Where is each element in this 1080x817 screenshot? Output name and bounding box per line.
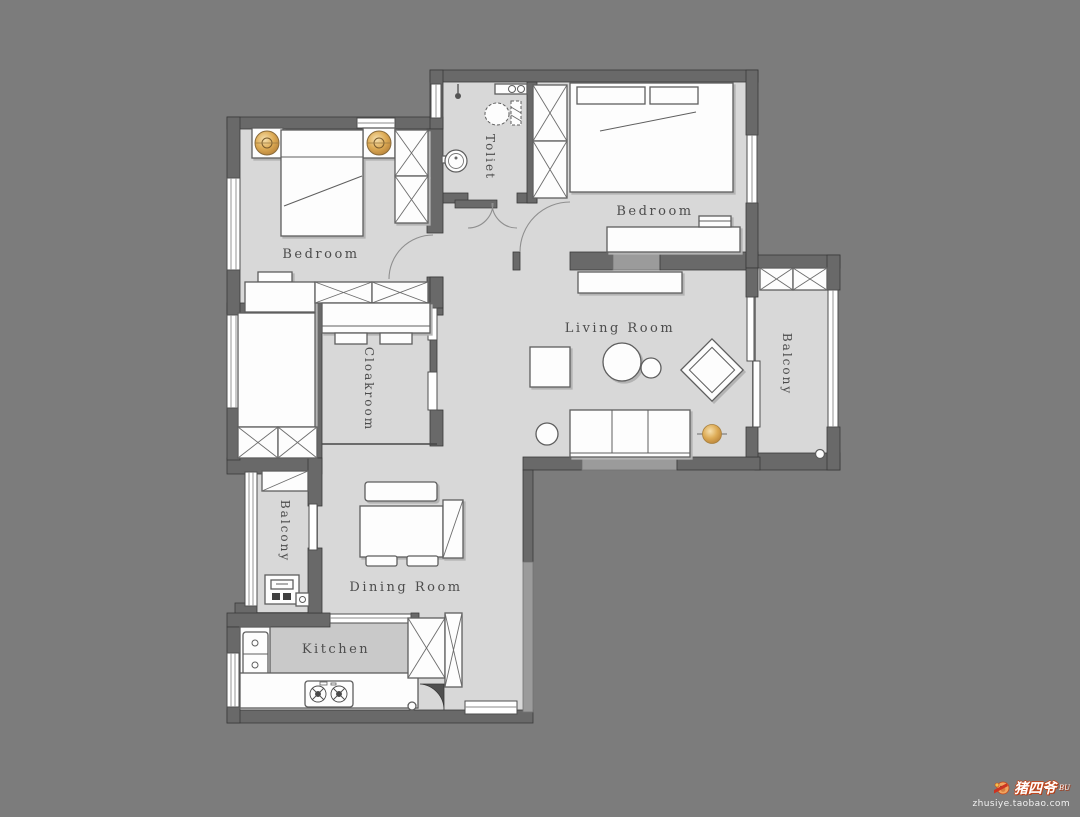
- ceiling-lamp-icon: [255, 131, 279, 155]
- bed-icon: [281, 130, 363, 236]
- window-hall-bottom: [465, 701, 517, 714]
- window-balcony-right: [828, 290, 838, 427]
- ceiling-lamp-icon: [367, 131, 391, 155]
- dining-bench-icon: [443, 500, 463, 558]
- washing-machine-icon: [265, 575, 299, 604]
- watermark-url: zhusiye.taobao.com: [960, 799, 1070, 809]
- window-kitchen-pass-through: [330, 614, 411, 623]
- balcony-cabinet-icon: [760, 268, 827, 290]
- toilet-threshold: [455, 200, 497, 208]
- watermark-brand: 猪四爷: [1014, 778, 1056, 798]
- pillow-icon: [650, 87, 698, 104]
- window-bedroom1-left: [227, 178, 240, 270]
- pillow-icon: [577, 87, 645, 104]
- window-bedroom2-right: [747, 135, 757, 203]
- side-table-icon: [530, 347, 570, 387]
- dining-chair-icon: [407, 556, 438, 566]
- dining-table-icon: [360, 506, 443, 557]
- dining-chair-icon: [366, 556, 397, 566]
- drain-icon: [816, 450, 825, 459]
- fridge-icon: [408, 613, 462, 687]
- door-stop-icon: [408, 702, 416, 710]
- tv-console-icon: [578, 272, 682, 293]
- room-label-bedroom-2: Bedroom: [616, 204, 693, 219]
- room-label-kitchen: Kitchen: [302, 642, 370, 657]
- room-label-toilet: Toliet: [483, 134, 497, 180]
- room-label-dining-room: Dining Room: [349, 580, 462, 595]
- faucet-icon: [509, 86, 516, 93]
- dining-chair-icon: [365, 482, 437, 501]
- window-bedroom1-top: [357, 118, 395, 128]
- watermark-brand-suffix: BU: [1059, 784, 1070, 792]
- window-balcony-left: [245, 472, 257, 606]
- balcony-shelf-icon: [262, 471, 308, 491]
- coffee-table-icon: [603, 343, 641, 381]
- pig-logo-icon: [994, 780, 1012, 796]
- room-label-balcony-left: Balcony: [278, 500, 292, 562]
- sofa-icon: [570, 410, 690, 457]
- room-label-balcony-right: Balcony: [780, 333, 794, 395]
- room-label-bedroom-1: Bedroom: [282, 247, 359, 262]
- coffee-table-small-icon: [641, 358, 661, 378]
- window-toilet-left: [431, 84, 441, 118]
- low-cabinet-icon: [315, 282, 428, 303]
- toilet-bowl-icon: [485, 101, 521, 125]
- wardrobe-icon: [395, 130, 428, 223]
- sliding-door-balcony-dining: [309, 504, 317, 550]
- faucet-icon: [518, 86, 525, 93]
- tatami-bed-icon: [238, 313, 315, 427]
- room-label-cloakroom: Cloakroom: [362, 347, 376, 431]
- room-label-living-room: Living Room: [565, 321, 675, 336]
- kitchen-sink-icon: [243, 632, 268, 676]
- tatami-cabinet-icon: [238, 427, 317, 458]
- watermark: 猪四爷 BU zhusiye.taobao.com: [960, 778, 1070, 809]
- stool-icon: [380, 333, 412, 344]
- wardrobe-icon: [533, 85, 567, 198]
- stove-icon: [305, 681, 353, 707]
- stool-round-icon: [536, 423, 558, 445]
- window-kitchen-left: [227, 653, 239, 707]
- vanity-desk-icon: [322, 303, 430, 333]
- floor-drain-icon: [296, 593, 309, 606]
- stool-icon: [335, 333, 367, 344]
- floor-plan: Bedroom Cloakroom: [0, 0, 1080, 817]
